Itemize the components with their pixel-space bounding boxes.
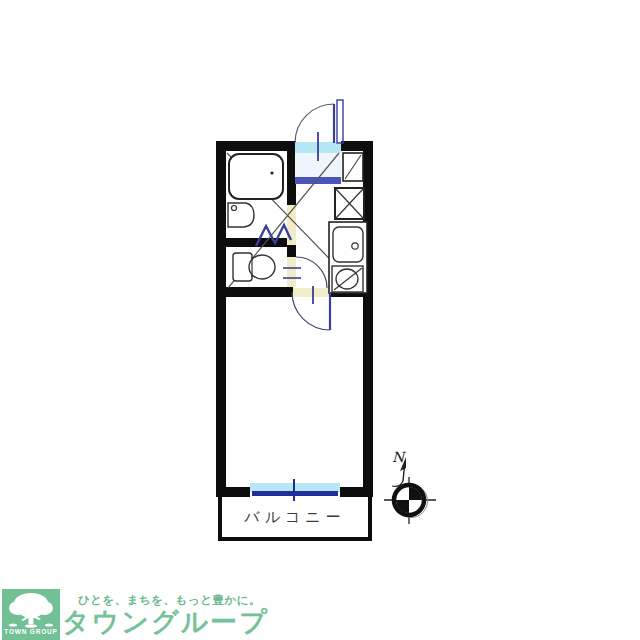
- compass-north-label: N: [392, 449, 414, 465]
- compass: [384, 457, 436, 524]
- town-group-logo-text: TOWN GROUP: [2, 628, 60, 635]
- town-group-logo-mark: TOWN GROUP: [2, 589, 60, 640]
- floorplan-vector-layer: [0, 0, 640, 640]
- toilet-door-arc: [296, 257, 327, 288]
- bathtub: [229, 154, 283, 199]
- bathroom-folding-door: [256, 225, 291, 246]
- floorplan-image: バルコニー: [0, 0, 640, 640]
- bathtub-drain: [270, 171, 273, 174]
- room-door-arc: [292, 292, 330, 330]
- entrance-door-arc: [295, 104, 334, 143]
- toilet-bowl: [249, 255, 275, 279]
- entrance-door-frame: [337, 100, 343, 143]
- logo-brand-name: タウングループ: [62, 604, 362, 640]
- kitchen-sink: [333, 227, 363, 262]
- kitchen-sink-drain: [352, 243, 358, 249]
- tree-icon: [2, 589, 60, 629]
